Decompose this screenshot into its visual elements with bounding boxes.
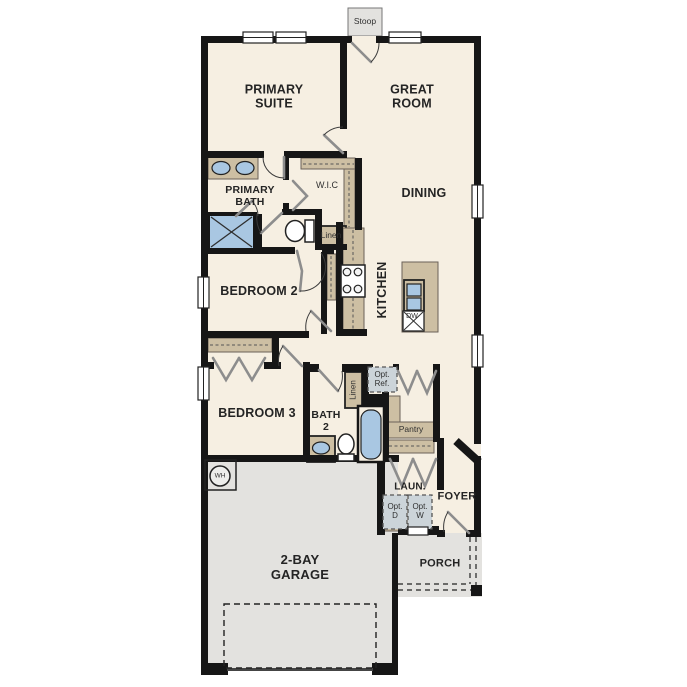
toilet2-tank <box>338 454 354 461</box>
toilet1-tank <box>305 220 314 242</box>
opt-dryer-label: Opt. D <box>387 502 402 520</box>
floorplan-drawing <box>0 0 687 687</box>
primary-bath-label: PRIMARY BATH <box>225 184 274 208</box>
bedroom2-label: BEDROOM 2 <box>220 284 298 298</box>
garage-label: 2-BAY GARAGE <box>271 553 329 583</box>
bathtub <box>361 410 381 459</box>
opt-ref-label: Opt. Ref. <box>374 370 389 388</box>
wic-label: W.I.C <box>316 180 338 190</box>
primary-suite-label: PRIMARY SUITE <box>245 83 304 112</box>
window-laundry <box>408 527 428 535</box>
water-heater-label: WH <box>215 472 226 479</box>
opt-washer-label: Opt. W <box>412 502 427 520</box>
bath2-sink <box>313 442 330 454</box>
bath2-label: BATH 2 <box>311 409 340 433</box>
island-sink-basin-1 <box>407 284 421 296</box>
vanity-sink-2 <box>236 162 254 175</box>
bedroom3-label: BEDROOM 3 <box>218 406 296 420</box>
kitchen-counter-a <box>327 254 336 300</box>
linen-upper-label: Linen <box>321 231 342 241</box>
stoop-label: Stoop <box>354 17 376 27</box>
dining-label: DINING <box>402 186 447 200</box>
island-sink-basin-2 <box>407 298 421 310</box>
porch-label: PORCH <box>420 558 461 571</box>
toilet2-bowl <box>338 434 354 454</box>
laundry-shelf <box>386 440 434 453</box>
linen-lower-label: Linen <box>348 380 357 400</box>
great-room-label: GREAT ROOM <box>390 83 434 112</box>
porch-post <box>471 585 482 596</box>
foyer-label: FOYER <box>438 491 477 504</box>
dishwasher-label: DW <box>406 313 418 321</box>
floorplan: Stoop PRIMARY SUITE GREAT ROOM PRIMARY B… <box>0 0 687 687</box>
laundry-label: LAUN. <box>394 481 426 493</box>
vanity-sink-1 <box>212 162 230 175</box>
kitchen-label: KITCHEN <box>375 262 389 319</box>
pantry-label: Pantry <box>399 425 424 435</box>
toilet1-bowl <box>286 221 305 242</box>
